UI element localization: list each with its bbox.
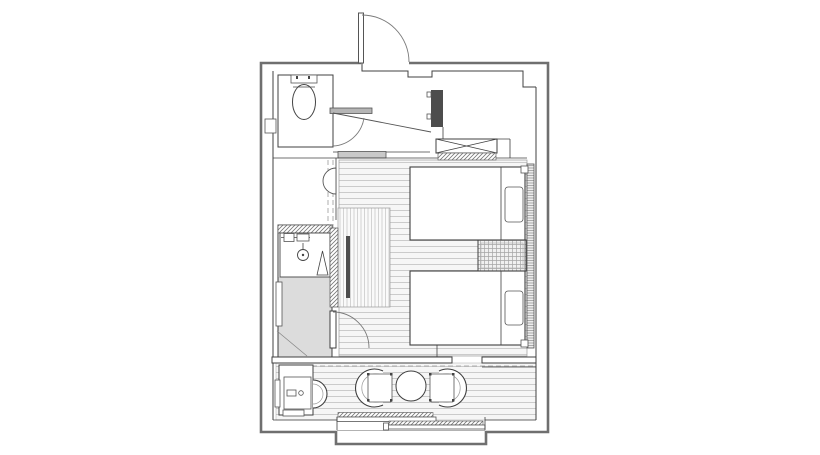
- window-sash-right: [387, 425, 485, 429]
- bed-2: [410, 271, 525, 345]
- bedside-lamp-bottom: [521, 340, 528, 347]
- round-table: [396, 371, 426, 401]
- luggage-rack: [436, 139, 497, 153]
- bed-1: [410, 167, 525, 240]
- veranda-divider-left: [272, 357, 452, 363]
- floor-plan-page: [0, 0, 820, 455]
- faucet-icon: [299, 391, 304, 396]
- tiled-wall: [330, 228, 338, 307]
- pillow: [505, 291, 523, 325]
- toilet-paper-holder: [265, 119, 276, 133]
- door-pocket-band: [338, 152, 386, 159]
- closet-shelf: [438, 153, 496, 160]
- armchair-left: [356, 369, 393, 407]
- door-jamb: [330, 108, 372, 114]
- door-leaf: [359, 13, 364, 63]
- vanity-shelf: [283, 410, 304, 416]
- changing-area: [278, 277, 332, 357]
- bedside-lamp-top: [521, 166, 528, 173]
- towel-rail: [276, 282, 282, 326]
- glass-partition: [346, 236, 350, 298]
- walkway-floor: [338, 208, 390, 307]
- window-stile: [384, 423, 389, 430]
- structural-pillar: [431, 90, 443, 127]
- vanity-mirror: [275, 380, 280, 407]
- nightstand: [478, 240, 526, 271]
- vanity-sink: [275, 365, 313, 416]
- shower-wall-hatch: [278, 225, 332, 233]
- toilet: [291, 75, 317, 120]
- headboard-panel: [527, 164, 534, 348]
- door-leaf: [330, 311, 336, 348]
- armchair-right: [429, 369, 466, 407]
- floor-plan: [0, 0, 820, 455]
- pillow: [505, 187, 523, 222]
- veranda-divider-right: [482, 357, 536, 363]
